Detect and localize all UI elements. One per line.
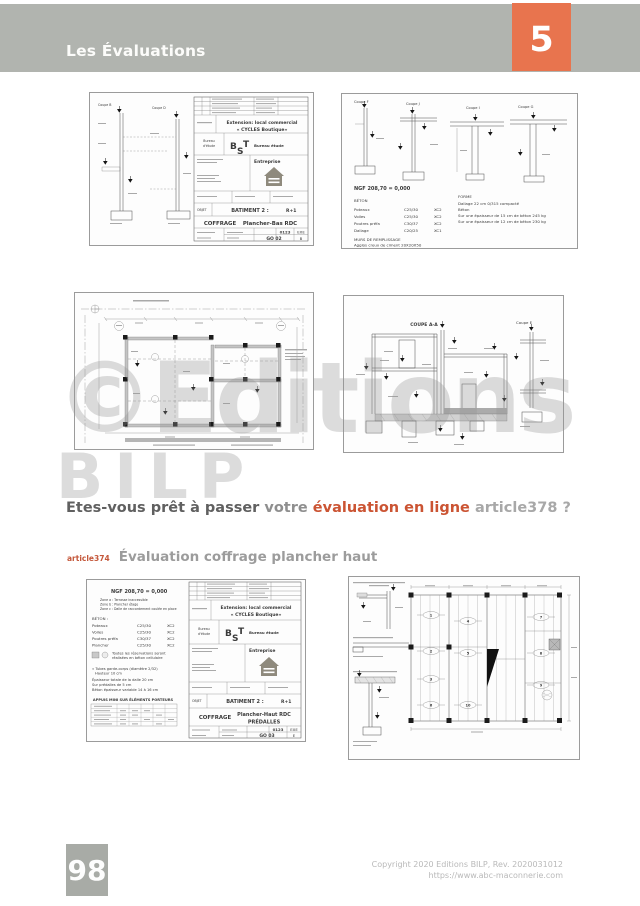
- maitre-ouvrage-placeholder: [192, 648, 218, 671]
- logo-letter-t: T: [238, 627, 245, 637]
- batiment-label: BATIMENT 2 :: [231, 208, 269, 214]
- doc-phase: EXE: [290, 727, 298, 732]
- maitre-ouvrage-placeholder: [197, 159, 223, 182]
- doc-number: GO 03: [259, 733, 274, 739]
- drawing-panel-predalles: 1 2 3 6 4 5 10 7 8 9: [348, 576, 580, 760]
- predalle-number: 5: [467, 651, 470, 655]
- copyright-line1: Copyright 2020 Editions BILP, Rev. 20200…: [372, 860, 563, 871]
- beton-row-label: Plancher: [92, 643, 109, 648]
- beton-row-label: Voiles: [354, 214, 365, 219]
- beton-row-exp: XC2: [434, 221, 442, 226]
- drawing-panel-coupes-beton: Coupe F Coupe J Coupe I Coupe G NGF 208,…: [341, 93, 578, 249]
- doc-phase: EXE: [297, 230, 305, 235]
- beton-row-exp: XC2: [167, 630, 175, 635]
- forme-title: FORME: [458, 194, 472, 199]
- cell-placeholder: [197, 232, 243, 239]
- beton-row-class: C25/30: [404, 214, 418, 219]
- coupe-e-drawing: [514, 324, 549, 427]
- cell-placeholder: [192, 730, 237, 737]
- watermark-line2: BILP: [56, 446, 255, 508]
- beton-row-exp: XC2: [167, 623, 175, 628]
- niveau-label: R+1: [286, 208, 296, 214]
- doc-type: COFFRAGE: [204, 221, 237, 227]
- beton-row-exp: XC1: [434, 228, 442, 233]
- murs-line1: MURS DE REMPLISSAGE: [354, 237, 401, 242]
- bureau-name: Bureau étude: [254, 143, 284, 148]
- beton-table: Poteaux C25/30 XC2 Voiles C25/30 XC2 Pou…: [354, 207, 442, 233]
- beton-row-class: C25/30: [137, 643, 151, 648]
- question-highlight: évaluation en ligne: [313, 500, 470, 516]
- entreprise-house-icon: [264, 167, 284, 186]
- predalle-number: 10: [465, 703, 471, 707]
- coupe-aa-title: COUPE A-A: [410, 322, 438, 328]
- logo-letter-s: S: [232, 634, 238, 644]
- appuis-title: APPUIS MINI SUR ÉLÉMENTS PORTEURS: [93, 697, 174, 702]
- question-part2: votre: [264, 500, 307, 516]
- logo-letter-b: B: [225, 629, 232, 639]
- evaluation-question: Etes-vous prêt à passer votre évaluation…: [66, 500, 571, 516]
- title-block-bas: Extension: local commercial « CYCLES Bou…: [194, 97, 308, 242]
- predalle-number: 6: [430, 703, 433, 707]
- floor-plan-bas: [81, 300, 307, 446]
- coupe-g-label: Coupe G: [518, 105, 534, 109]
- note-line: Béton épaisseur variable 14 à 16 cm: [92, 688, 159, 692]
- coupe-d-drawing: Coupe D: [150, 106, 191, 224]
- note-line: Hauteur 10 cm: [95, 672, 122, 676]
- legend-line2: réalisées en béton cellulaire: [112, 656, 163, 660]
- predalle-number: 1: [430, 613, 433, 617]
- doc-title: Plancher-Haut RDC: [237, 712, 291, 718]
- bureau-label2: d'étude: [203, 144, 215, 148]
- coupe-b-label: Coupe B: [98, 103, 111, 107]
- article374-ref: article374: [67, 554, 110, 563]
- logo-letter-t: T: [243, 140, 250, 150]
- doc-title2: PRÉDALLES: [248, 718, 281, 726]
- zone-b: Zone b : Plancher étage: [100, 603, 138, 607]
- predalle-number: 3: [430, 677, 433, 681]
- page-number: 98: [68, 854, 107, 887]
- logo-letter-b: B: [230, 142, 237, 152]
- beton-row-exp: XC2: [167, 643, 175, 648]
- bureau-label: Bureau: [203, 139, 214, 143]
- project-line1: Extension: local commercial: [221, 605, 292, 611]
- predalle-number: 2: [430, 649, 433, 653]
- beton-row-label: Poutres préfa: [92, 636, 118, 641]
- cell-placeholder: [197, 196, 293, 197]
- objet-label: OBJET: [197, 208, 207, 212]
- note-line: Sur prédalles de 5 cm: [92, 683, 132, 687]
- drawing-panel-coupe-aa: COUPE A-A Coupe E: [343, 295, 564, 453]
- dimension-text-placeholder: [356, 348, 493, 445]
- niveau-label: R+1: [281, 699, 291, 705]
- legend-line1: Toutes les réservations seront: [111, 652, 166, 656]
- cell-placeholder: [192, 687, 288, 688]
- objet-label: OBJET: [192, 699, 202, 703]
- ngf-level: NGF 208,70 = 0,000: [354, 186, 411, 192]
- beton-row-label: Dallage: [354, 228, 369, 233]
- beton-row-exp: XC2: [167, 636, 175, 641]
- project-line2: « CYCLES Boutique»: [237, 127, 288, 133]
- page-header-band: Les Évaluations 5: [0, 4, 640, 72]
- beton-title: BÉTON :: [92, 616, 108, 621]
- beton-row-class: C25/30: [137, 623, 151, 628]
- title-block-haut: Extension: local commercial « CYCLES Bou…: [189, 582, 301, 739]
- copyright: Copyright 2020 Editions BILP, Rev. 20200…: [372, 860, 563, 881]
- forme-line: Béton: [458, 207, 470, 212]
- predalles-layout-plan: 1 2 3 6 4 5 10 7 8 9: [409, 585, 578, 733]
- zone-notes: Zone a : Terrasse inaccessible Zone b : …: [100, 598, 177, 611]
- beton-row-label: Poteaux: [92, 623, 108, 628]
- predalle-number: 7: [540, 615, 543, 619]
- doc-title: Plancher-Bas RDC: [243, 221, 297, 227]
- slab-notes: « Tubes garde-corps (diamètre 2/32) Haut…: [92, 667, 159, 692]
- murs-line2: Agglos creux de ciment 20X20X50: [354, 243, 422, 248]
- beton-row-exp: XC2: [434, 214, 442, 219]
- coupe-b-drawing: Coupe B: [98, 103, 176, 224]
- drawing-panel-coffrage-haut: NGF 208,70 = 0,000 Zone a : Terrasse ina…: [86, 579, 306, 742]
- chapter-number: 5: [529, 14, 553, 60]
- appuis-table: [91, 704, 177, 726]
- beton-row-exp: XC2: [434, 207, 442, 212]
- coupe-d-label: Coupe D: [152, 106, 166, 110]
- beton-row-label: Poutres préfa: [354, 221, 380, 226]
- bureau-label2: d'étude: [198, 632, 210, 636]
- coupe-f-label: Coupe F: [354, 100, 369, 104]
- beton-row-class: C30/37: [404, 221, 418, 226]
- forme-line: Sur une épaisseur de 15 cm de béton 245 …: [458, 213, 546, 218]
- drawing-panel-coffrage-bas: Coupe B Coupe D Extension: local com: [89, 92, 314, 246]
- beton-row-class: C20/25: [404, 228, 418, 233]
- coupe-j-label: Coupe J: [406, 102, 420, 106]
- bureau-name: Bureau étude: [249, 630, 279, 635]
- project-line1: Extension: local commercial: [227, 120, 298, 126]
- beton-row-class: C30/37: [137, 636, 151, 641]
- page-number-box: 98: [66, 844, 108, 896]
- section-heading: article374 Évaluation coffrage plancher …: [67, 546, 377, 565]
- coupe-e-label: Coupe E: [516, 320, 533, 325]
- section-title: Évaluation coffrage plancher haut: [119, 549, 378, 565]
- forme-notes: FORME Dallage 22 cm 0/315 compacté Béton…: [458, 194, 546, 224]
- drawing-panel-plan-bas: [74, 292, 314, 450]
- note-line: Épaisseur totale de la dalle 20 cm: [92, 677, 154, 682]
- coupe-i-label: Coupe I: [466, 106, 480, 110]
- doc-type: COFFRAGE: [199, 715, 232, 721]
- bureau-label: Bureau: [198, 627, 209, 631]
- page-title: Les Évaluations: [66, 42, 206, 60]
- doc-code: 0123: [280, 230, 291, 235]
- forme-line: Dallage 22 cm 0/315 compacté: [458, 201, 520, 206]
- dimension-text-placeholder: [98, 123, 137, 224]
- beton-title: BÉTON: [354, 198, 368, 203]
- article378-ref: article378 ?: [475, 500, 571, 516]
- detail-drawings: [353, 582, 409, 746]
- ngf-level: NGF 208,70 = 0,000: [111, 589, 168, 595]
- beton-row-label: Voiles: [92, 630, 103, 635]
- section-drawing: COUPE A-A Coupe E: [356, 320, 533, 445]
- beton-row-class: C25/30: [137, 630, 151, 635]
- zone-a: Zone a : Terrasse inaccessible: [100, 598, 148, 602]
- entreprise-label: Entreprise: [249, 648, 275, 654]
- logo-letter-s: S: [237, 147, 243, 157]
- chapter-number-box: 5: [512, 3, 571, 71]
- copyright-line2: https://www.abc-maconnerie.com: [372, 871, 563, 882]
- predalle-number: 4: [467, 619, 470, 623]
- dimension-text-placeholder: [150, 133, 191, 224]
- doc-code: 0123: [273, 727, 284, 732]
- beton-row-class: C25/30: [404, 207, 418, 212]
- coupe-sections: Coupe F Coupe J Coupe I Coupe G: [354, 100, 567, 182]
- doc-number: GO 02: [266, 236, 281, 242]
- note-line: « Tubes garde-corps (diamètre 2/32): [92, 667, 158, 671]
- batiment-label: BATIMENT 2 :: [226, 699, 264, 705]
- entreprise-house-icon: [259, 657, 279, 676]
- question-part1: Etes-vous prêt à passer: [66, 500, 259, 516]
- predalle-number: 9: [540, 683, 543, 687]
- predalle-number: 8: [540, 651, 543, 655]
- entreprise-label: Entreprise: [254, 159, 280, 165]
- zone-c: Zone c : Dalle de raccordement coulée en…: [100, 607, 177, 611]
- predalle-labels: 1 2 3 6 4 5 10 7 8 9: [417, 612, 555, 709]
- project-line2: « CYCLES Boutique»: [231, 612, 282, 618]
- forme-line: Sur une épaisseur de 12 cm de béton 230 …: [458, 219, 546, 224]
- doc-index: B: [300, 236, 303, 241]
- reservation-legend: Toutes les réservations seront réalisées…: [92, 652, 166, 661]
- doc-index: E: [293, 733, 296, 738]
- beton-row-label: Poteaux: [354, 207, 370, 212]
- beton-table: Poteaux C25/30 XC2 Voiles C25/30 XC2 Pou…: [92, 623, 175, 648]
